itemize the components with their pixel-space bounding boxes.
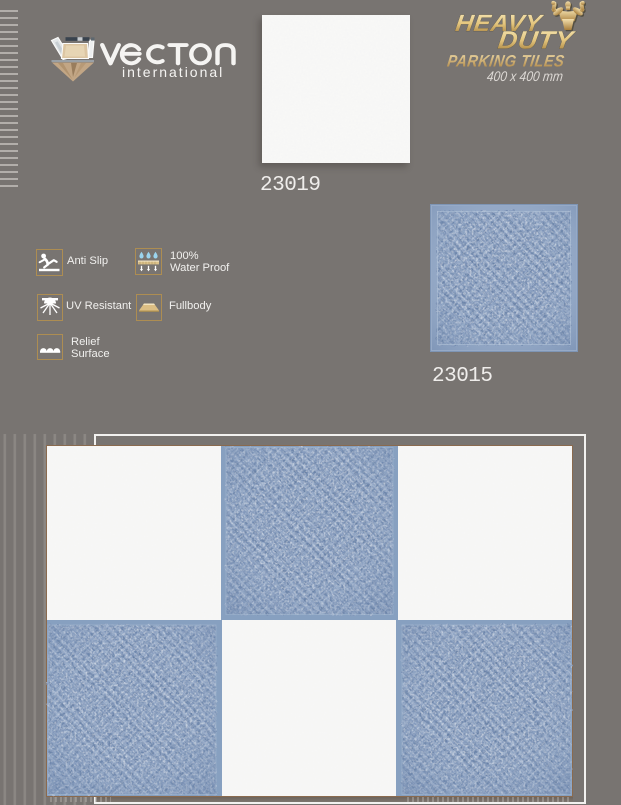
svg-text:400 x 400 mm: 400 x 400 mm <box>486 68 564 84</box>
svg-text:DUTY: DUTY <box>496 27 577 55</box>
